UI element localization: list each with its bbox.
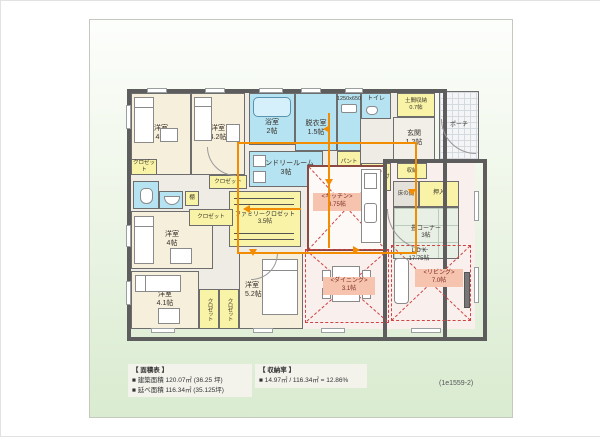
legend-row: ■ 延べ面積 116.34㎡ (35.125坪) bbox=[132, 386, 248, 396]
oshiire-closet: 押入 bbox=[419, 181, 459, 207]
window-mark bbox=[147, 88, 167, 93]
closet-label: クロゼット bbox=[206, 298, 213, 321]
living-zone-label: <リビング> 7.0帖 bbox=[415, 269, 463, 287]
room-size: 2帖 bbox=[267, 128, 278, 137]
desk-icon bbox=[160, 128, 178, 142]
zone-name: <キッチン> bbox=[315, 194, 359, 202]
washer-icon bbox=[253, 155, 266, 167]
room-label: 押入 bbox=[433, 190, 445, 198]
flow-arrow-down bbox=[325, 179, 333, 190]
shelf-label: 棚 bbox=[189, 195, 195, 202]
room-label: 洋室 bbox=[165, 231, 179, 240]
closet-south-1: クロゼット bbox=[199, 289, 219, 329]
window-mark bbox=[301, 88, 321, 93]
tv-board-icon bbox=[464, 272, 470, 308]
stove-icon bbox=[364, 173, 377, 189]
floor-plan-page: ポーチ 洋室 4帖 クロゼット 洋室 4.2帖 クロゼット 浴室 2帖 脱衣室 … bbox=[0, 0, 600, 437]
legend-row-value: 116.34㎡ (35.125坪) bbox=[166, 387, 224, 394]
ldk-label: L D K 17.75帖 bbox=[397, 248, 441, 264]
flow-line-closet bbox=[247, 208, 301, 210]
hanger-rod-icon bbox=[234, 198, 294, 205]
dining-zone-label: <ダイニング> 3.1帖 bbox=[323, 277, 375, 295]
closet-label: クロゼット bbox=[132, 160, 156, 174]
bed-icon bbox=[135, 275, 181, 292]
shelf: 棚 bbox=[185, 191, 199, 206]
closet-northwest: クロゼット bbox=[131, 159, 157, 175]
plan-id: (1e1559-2) bbox=[439, 380, 473, 387]
washbasin-icon bbox=[341, 104, 357, 113]
entrance-storage: 土間収納 0.7帖 bbox=[397, 93, 435, 117]
window-mark bbox=[259, 88, 283, 93]
room-label: L D K bbox=[397, 248, 441, 256]
vanity-size-label: 1250x650 bbox=[337, 96, 361, 103]
washer-icon bbox=[253, 171, 266, 183]
legend-row-label: ■ 延べ面積 bbox=[132, 387, 164, 394]
legend-row-value: 120.07㎡ (36.25 坪) bbox=[166, 377, 223, 384]
bedroom-southwest: 洋室 4.1帖 bbox=[131, 271, 199, 329]
window-mark bbox=[126, 105, 131, 129]
room-size: 4.2帖 bbox=[210, 134, 227, 143]
legend-row-label: ■ bbox=[259, 377, 263, 384]
desk-icon bbox=[170, 248, 192, 264]
closet-west: クロゼット bbox=[189, 209, 233, 226]
desk-icon bbox=[158, 308, 180, 324]
storage-shuno: 収納 bbox=[397, 163, 427, 179]
zone-size: 7.0帖 bbox=[417, 278, 461, 286]
legend-row-value: 14.97㎡ / 116.34㎡ = 12.86% bbox=[265, 377, 349, 384]
zone-size: 3.1帖 bbox=[325, 286, 373, 294]
room-size: 3帖 bbox=[281, 169, 292, 178]
desk-icon bbox=[226, 124, 240, 142]
sofa-icon bbox=[394, 258, 409, 304]
closet-label: クロゼット bbox=[214, 179, 242, 186]
room-size: 5.2帖 bbox=[245, 291, 262, 300]
flow-arrow-left bbox=[239, 205, 250, 213]
washstand-area: 1250x650 bbox=[337, 93, 361, 151]
bed-icon bbox=[134, 216, 154, 264]
closet-label: クロゼット bbox=[226, 298, 233, 321]
toilet-room: トイレ bbox=[361, 93, 391, 119]
room-label: 玄関 bbox=[407, 130, 421, 139]
flow-arrow-down bbox=[249, 249, 257, 260]
window-mark bbox=[205, 88, 225, 93]
bed-icon bbox=[134, 97, 154, 143]
hanger-rod-icon bbox=[234, 233, 294, 240]
window-mark bbox=[151, 328, 175, 333]
bathroom: 浴室 2帖 bbox=[249, 93, 295, 145]
legend-title: 【 収納率 】 bbox=[259, 366, 363, 376]
toilet-icon bbox=[140, 188, 153, 204]
legend-row: ■ 14.97㎡ / 116.34㎡ = 12.86% bbox=[259, 376, 363, 386]
flow-arrow-left bbox=[319, 125, 330, 133]
toilet-icon bbox=[366, 106, 378, 115]
toilet-room-2 bbox=[133, 181, 159, 209]
legend-row-label: ■ 建築面積 bbox=[132, 377, 164, 384]
room-label: ランドリールーム bbox=[258, 160, 314, 169]
washbasin-area-2 bbox=[159, 191, 183, 209]
entrance: 玄関 1.2帖 bbox=[393, 117, 435, 161]
window-mark bbox=[474, 267, 479, 303]
zone-size: 3.75帖 bbox=[315, 202, 359, 210]
window-mark bbox=[321, 328, 345, 333]
window-mark bbox=[126, 281, 131, 305]
closet-label: クロゼット bbox=[197, 214, 225, 221]
room-label: トイレ bbox=[367, 96, 385, 104]
room-size: 0.7帖 bbox=[409, 105, 422, 112]
washbasin-icon bbox=[164, 196, 180, 205]
bathtub-icon bbox=[253, 97, 291, 117]
room-size: 17.75帖 bbox=[397, 256, 441, 264]
legend-row: ■ 建築面積 120.07㎡ (36.25 坪) bbox=[132, 376, 248, 386]
flow-line-kitchen bbox=[328, 144, 330, 248]
legend-title: 【 面積表 】 bbox=[132, 366, 248, 376]
bed-icon bbox=[194, 97, 212, 141]
closet-north: クロゼット bbox=[209, 175, 247, 189]
storage-rate-legend: 【 収納率 】 ■ 14.97㎡ / 116.34㎡ = 12.86% bbox=[255, 364, 367, 388]
room-label: 洋室 bbox=[158, 291, 172, 300]
room-label: 浴室 bbox=[265, 119, 279, 128]
closet-south-2: クロゼット bbox=[219, 289, 239, 329]
flow-arrow-down bbox=[408, 189, 416, 200]
room-label: 洋室 bbox=[245, 282, 259, 291]
room-size: 3.5帖 bbox=[258, 219, 272, 227]
area-table-legend: 【 面積表 】 ■ 建築面積 120.07㎡ (36.25 坪) ■ 延べ面積 … bbox=[128, 364, 252, 397]
sink-icon bbox=[364, 203, 377, 223]
zone-name: <リビング> bbox=[417, 270, 461, 278]
window-mark bbox=[126, 225, 131, 247]
family-closet: ファミリークロゼット 3.5帖 bbox=[229, 191, 301, 247]
flow-arrow-right bbox=[353, 246, 364, 254]
window-mark bbox=[411, 328, 441, 333]
window-mark bbox=[345, 88, 363, 93]
window-mark bbox=[253, 328, 273, 333]
kitchen-zone-label: <キッチン> 3.75帖 bbox=[313, 193, 361, 211]
room-label: 収納 bbox=[406, 168, 417, 175]
window-mark bbox=[474, 191, 479, 221]
dressing-room: 脱衣室 1.5帖 bbox=[295, 93, 337, 151]
zone-name: <ダイニング> bbox=[325, 278, 373, 286]
room-label: 土間収納 bbox=[405, 98, 427, 105]
room-size: 1.2帖 bbox=[406, 139, 423, 148]
room-label: 洋室 bbox=[211, 125, 225, 134]
